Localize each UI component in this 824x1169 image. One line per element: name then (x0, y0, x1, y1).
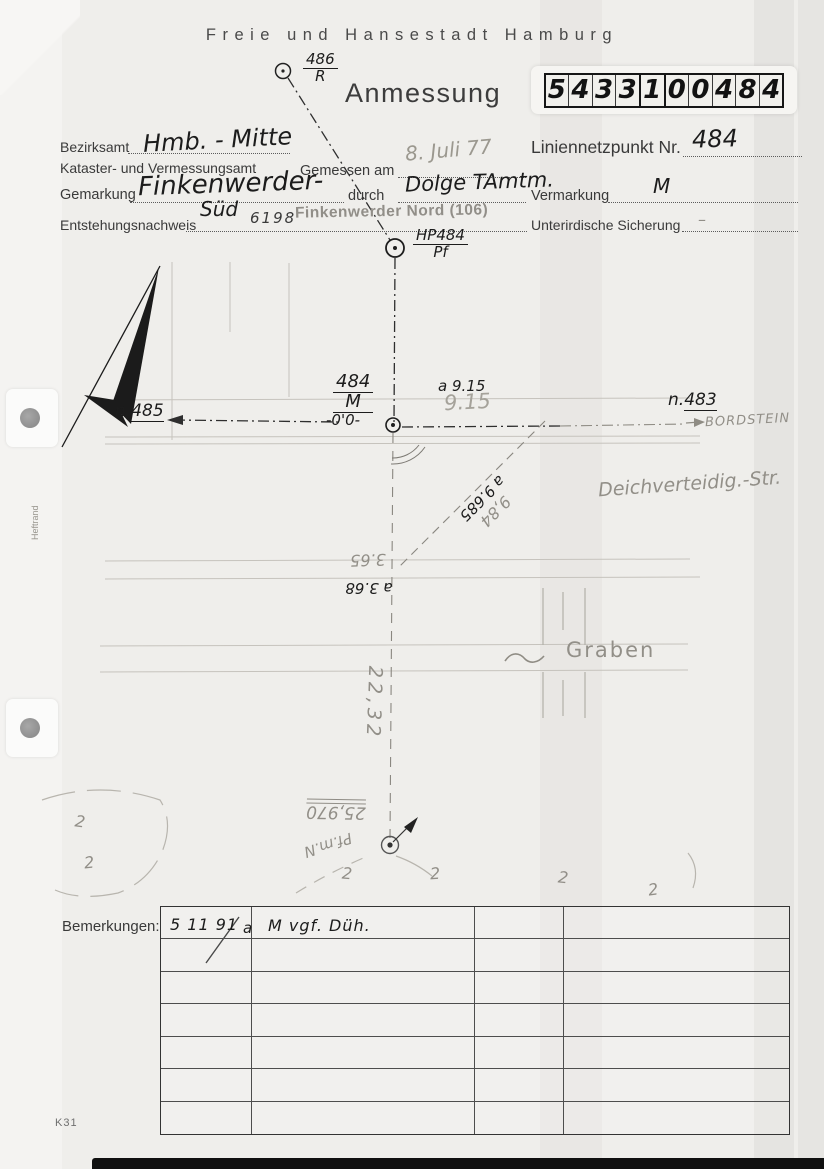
survey-dashdot-pencil (560, 424, 686, 426)
point-label-486: 486 R (303, 52, 338, 85)
rule-line (682, 231, 798, 232)
liniennetzpunkt-value: 484 (692, 124, 739, 154)
table-cell (252, 972, 475, 1004)
table-cell (475, 1037, 564, 1069)
gemarkung-value2: Süd (200, 197, 238, 221)
doc-digit: 4 (760, 75, 783, 106)
page-title: Freie und Hansestadt Hamburg (200, 26, 624, 45)
remark-text: M vgf. Düh. (268, 916, 371, 935)
liniennetzpunkt-label: Liniennetzpunkt Nr. (531, 137, 681, 158)
doc-digit: 4 (569, 75, 593, 106)
form-title: Anmessung (345, 78, 501, 109)
point-number: 483 (684, 390, 716, 411)
terrain-mark: 2 (429, 864, 440, 884)
survey-point-486 (276, 64, 291, 79)
measure-25970: 25,970 (306, 801, 366, 822)
arrow-left-icon (167, 415, 183, 425)
gemarkung-label: Gemarkung (60, 187, 136, 203)
remark-suffix: a (243, 919, 252, 937)
doc-digit: 0 (689, 75, 713, 106)
bemerkungen-label: Bemerkungen: (62, 918, 160, 935)
doc-digit: 3 (593, 75, 617, 106)
point-marker-type: M (333, 393, 373, 413)
sicherung-value: – (698, 210, 706, 229)
table-cell (161, 939, 252, 971)
point-label-484: 484 M (333, 373, 373, 413)
sicherung-label: Unterirdische Sicherung (531, 217, 680, 233)
point-prefix: n. (668, 390, 684, 410)
point-number: 485 (131, 401, 163, 422)
remark-date: 5 11 91 (170, 915, 238, 934)
table-cell (475, 972, 564, 1004)
terrain-mark: 2 (341, 864, 353, 884)
table-cell (161, 1069, 252, 1101)
rule-line (683, 156, 802, 157)
document-number-sticker: 5 4 3 3 1 0 0 4 8 4 (531, 66, 797, 114)
table-cell (564, 1102, 789, 1134)
point-marker-type: R (303, 69, 338, 85)
table-cell (564, 1069, 789, 1101)
table-cell (252, 1037, 475, 1069)
neighbor-point-485: n.485 (115, 401, 164, 421)
table-cell (475, 1102, 564, 1134)
pencil-dashed-lines (390, 421, 545, 838)
table-cell (475, 939, 564, 971)
table-cell (252, 1102, 475, 1134)
measure-915-pencil: 9.15 (443, 389, 491, 415)
doc-digit: 1 (641, 75, 666, 106)
measure-a368-ink: a 3.68 (345, 579, 392, 597)
point-prefix: n. (115, 401, 131, 421)
table-cell (252, 1069, 475, 1101)
durch-label: durch (348, 188, 384, 204)
document-number-box: 5 4 3 3 1 0 0 4 8 4 (544, 73, 785, 108)
entstehungsnachweis-label: Entstehungsnachweis (60, 217, 196, 233)
doc-digit: 3 (616, 75, 641, 106)
survey-point-484 (386, 418, 400, 432)
table-cell (564, 1037, 789, 1069)
point-marker-type: Pf (413, 245, 468, 261)
doc-digit: 5 (546, 75, 570, 106)
table-cell (564, 972, 789, 1004)
doc-digit: 0 (666, 75, 690, 106)
form-code: K31 (55, 1117, 78, 1129)
hole-punch-tab (6, 389, 58, 447)
rule-line (608, 202, 798, 203)
table-cell (475, 907, 564, 939)
bezirksamt-label: Bezirksamt (60, 139, 129, 155)
table-cell (564, 939, 789, 971)
vermarkung-value: M (653, 174, 670, 198)
measure-365-pencil: 3.65 (350, 550, 386, 570)
tilde-mark (505, 654, 544, 662)
entstehungsnachweis-value: 6198 (250, 209, 296, 227)
height-value: 25,970 (306, 798, 366, 822)
point-number: 484 (333, 373, 373, 393)
punch-hole (20, 718, 40, 738)
scan-edge-strip (92, 1158, 824, 1169)
scanned-form-page: Freie und Hansestadt Hamburg Anmessung 5… (0, 0, 824, 1169)
table-cell (161, 1004, 252, 1036)
rule-line (186, 231, 527, 232)
angle-arcs (391, 445, 425, 464)
hole-punch-tab (6, 699, 58, 757)
measure-2232: 22,32 (362, 665, 387, 740)
table-cell (564, 907, 789, 939)
doc-digit: 8 (736, 75, 760, 106)
table-cell (161, 1102, 252, 1134)
table-cell (252, 1004, 475, 1036)
remarks-grid (160, 906, 790, 1135)
table-cell (252, 939, 475, 971)
point-label-hp484: HP484 Pf (413, 228, 468, 261)
table-cell (161, 972, 252, 1004)
doc-digit: 4 (713, 75, 737, 106)
table-cell (161, 1037, 252, 1069)
graben-label: Graben (566, 638, 655, 662)
table-cell (564, 1004, 789, 1036)
table-cell (475, 1004, 564, 1036)
office-stamp: Finkenwerder Nord (106) (295, 201, 489, 222)
heftrand-label: Heftrand (30, 505, 40, 540)
survey-point-hp484 (386, 239, 404, 257)
terrain-mark: 2 (557, 868, 569, 888)
zero-mark: -0'0- (326, 411, 360, 429)
survey-point-bottom (382, 817, 419, 854)
arrow-right-icon (694, 418, 705, 427)
faint-guide-lines (100, 262, 700, 672)
neighbor-point-483: n.483 (668, 390, 717, 410)
punch-hole (20, 408, 40, 428)
table-cell (475, 1069, 564, 1101)
terrain-mark: 2 (83, 853, 95, 873)
